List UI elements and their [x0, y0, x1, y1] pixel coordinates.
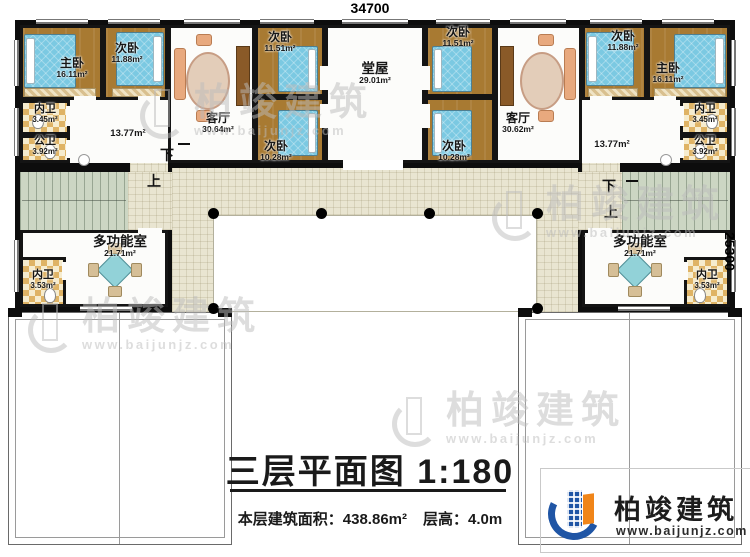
stair-divider-right — [624, 200, 728, 201]
staircase-right — [622, 172, 730, 230]
courtyard-walkway-left — [172, 215, 213, 312]
window — [260, 19, 314, 24]
room-main-hall — [325, 25, 425, 163]
label-inner-bath-left: 内卫3.45m² — [22, 104, 68, 124]
chair — [88, 263, 99, 277]
wall-stub — [218, 308, 232, 317]
plan-title: 三层平面图 1:180 — [220, 444, 520, 493]
floor-plan-canvas: 34700 25300 — [0, 0, 750, 557]
window — [662, 19, 714, 24]
window — [14, 40, 19, 86]
basin — [78, 154, 90, 166]
window — [510, 19, 566, 24]
window — [436, 19, 490, 24]
rug — [520, 52, 564, 110]
label-inner-bath-right: 内卫3.45m² — [682, 104, 728, 124]
window — [731, 108, 736, 156]
window — [184, 19, 240, 24]
staircase-left — [20, 172, 128, 230]
watermark-logo-icon — [392, 393, 436, 445]
door-gap — [320, 66, 330, 90]
label-second-mid-right-upper: 次卧11.51m² — [428, 26, 488, 48]
stair-down-label-right: 下 — [602, 176, 616, 196]
label-public-bath-left: 公卫3.92m² — [22, 136, 68, 156]
basin — [660, 154, 672, 166]
brand-frame-line — [540, 552, 750, 553]
stair-tick — [178, 143, 190, 145]
door-gap — [138, 96, 160, 102]
wall-stub — [728, 308, 742, 317]
label-living-right: 客厅30.62m² — [488, 112, 548, 134]
main-hall-entrance — [343, 160, 403, 170]
chair — [608, 263, 619, 277]
door-gap — [420, 104, 430, 128]
window — [36, 19, 88, 24]
door-gap — [420, 66, 430, 90]
door-gap — [654, 96, 676, 102]
armchair — [196, 34, 212, 46]
window — [731, 40, 736, 86]
brand-logo-building-blue — [567, 490, 582, 528]
brand-logo-building-orange — [583, 493, 594, 525]
label-second-left: 次卧11.88m² — [98, 42, 156, 64]
toilet — [44, 288, 56, 303]
pillow — [715, 38, 724, 84]
column — [208, 208, 219, 219]
window — [80, 306, 132, 311]
label-living-left: 客厅30.64m² — [188, 112, 248, 134]
pillow — [26, 38, 35, 84]
door-gap — [74, 96, 96, 102]
toilet — [694, 288, 706, 303]
label-corridor-right: 13.77m² — [582, 140, 642, 150]
courtyard-walkway-top — [172, 168, 578, 215]
label-multi-left: 多功能室21.71m² — [75, 235, 165, 258]
door-gap — [320, 104, 330, 128]
title-underline — [230, 489, 506, 492]
stair-up-label-left: 上 — [147, 171, 161, 191]
chair — [131, 263, 142, 277]
pillow — [308, 113, 316, 153]
plan-subtitle: 本层建筑面积：438.86m²层高：4.0m — [190, 508, 550, 529]
label-public-bath-right: 公卫3.92m² — [682, 136, 728, 156]
stair-up-label-right: 上 — [604, 202, 618, 222]
door-gap — [588, 228, 612, 235]
door-gap — [590, 96, 612, 102]
window — [14, 240, 19, 292]
courtyard-walkway-right — [537, 215, 578, 312]
sofa — [564, 48, 576, 100]
window — [108, 19, 160, 24]
rug — [186, 52, 230, 110]
chair — [628, 286, 642, 297]
label-main-hall: 堂屋29.01m² — [340, 62, 410, 85]
window — [14, 108, 19, 156]
tv-cabinet — [500, 46, 514, 106]
chair — [108, 286, 122, 297]
stair-down-label-left: 下 — [160, 145, 174, 165]
armchair — [538, 34, 554, 46]
label-corridor-left: 13.77m² — [98, 129, 158, 139]
pillow — [308, 49, 316, 89]
chair — [651, 263, 662, 277]
column — [532, 303, 543, 314]
brand-frame-line — [540, 468, 750, 469]
stair-divider-left — [22, 200, 126, 201]
label-second-right: 次卧11.88m² — [594, 30, 652, 52]
wall-stub — [518, 308, 532, 317]
brand-name: 柏竣建筑 — [614, 488, 738, 527]
label-multi-bath-left: 内卫3.53m² — [22, 270, 64, 290]
label-master-left: 主卧16.11m² — [40, 57, 104, 79]
label-second-mid-right-lower: 次卧10.28m² — [424, 140, 484, 162]
label-multi-right: 多功能室21.71m² — [595, 235, 685, 258]
column — [316, 208, 327, 219]
stair-tick — [626, 180, 638, 182]
sofa — [174, 48, 186, 100]
roof-divider-left — [119, 313, 120, 544]
wall-stub — [8, 308, 22, 317]
dimension-height: 25300 — [722, 232, 738, 304]
column — [532, 208, 543, 219]
window — [342, 19, 408, 24]
courtyard-opening — [213, 215, 537, 312]
window — [618, 306, 670, 311]
label-multi-bath-right: 内卫3.53m² — [686, 270, 728, 290]
label-master-right: 主卧16.11m² — [636, 62, 700, 84]
tv-cabinet — [236, 46, 250, 106]
label-second-mid-left-upper: 次卧11.51m² — [250, 31, 310, 53]
pillow — [434, 49, 442, 89]
dimension-width: 34700 — [330, 0, 410, 16]
stair-opening-right — [582, 163, 620, 172]
brand-url: www.baijunjz.com — [616, 524, 748, 538]
column — [424, 208, 435, 219]
window — [590, 19, 642, 24]
label-second-mid-left-lower: 次卧10.28m² — [246, 140, 306, 162]
